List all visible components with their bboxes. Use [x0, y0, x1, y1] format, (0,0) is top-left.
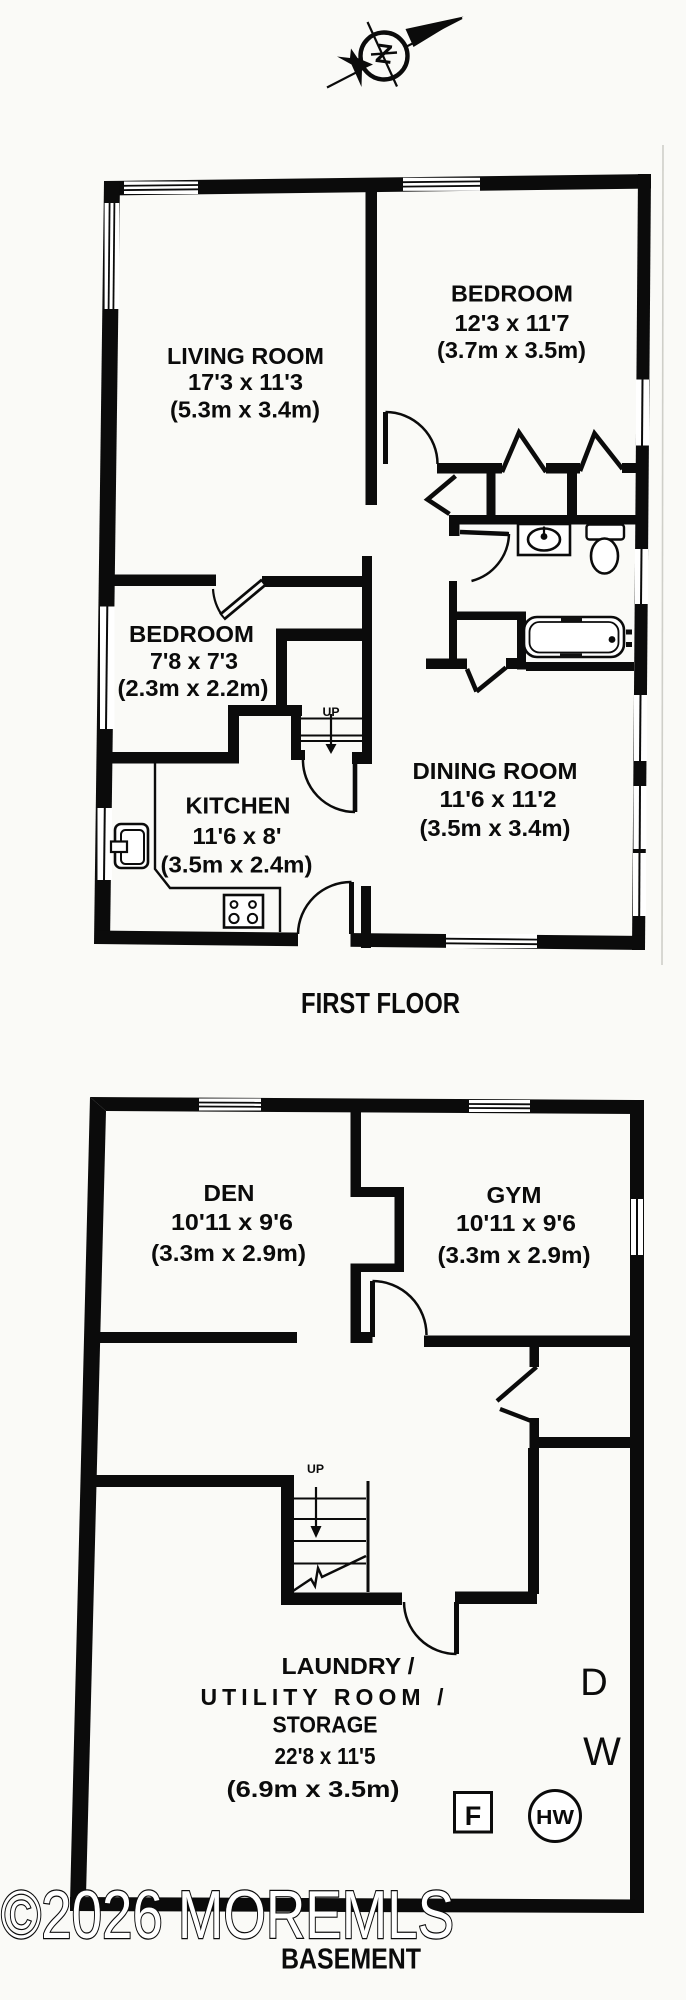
svg-text:(3.5m x 2.4m): (3.5m x 2.4m): [161, 852, 313, 878]
svg-text:HW: HW: [536, 1806, 575, 1829]
svg-text:DEN: DEN: [204, 1180, 255, 1206]
svg-text:11'6 x 8': 11'6 x 8': [193, 823, 282, 849]
svg-text:(2.3m x 2.2m): (2.3m x 2.2m): [118, 675, 269, 701]
svg-text:UP: UP: [307, 1464, 324, 1476]
svg-text:(3.5m x 3.4m): (3.5m x 3.4m): [420, 815, 571, 841]
svg-text:LAUNDRY /: LAUNDRY /: [282, 1653, 416, 1679]
svg-text:D: D: [580, 1662, 607, 1704]
svg-text:(6.9m x 3.5m): (6.9m x 3.5m): [227, 1776, 400, 1802]
svg-text:BASEMENT: BASEMENT: [281, 1944, 421, 1976]
svg-text:W: W: [583, 1730, 621, 1774]
svg-text:BEDROOM: BEDROOM: [451, 281, 573, 307]
svg-text:(5.3m x 3.4m): (5.3m x 3.4m): [170, 397, 320, 423]
svg-text:10'11 x 9'6: 10'11 x 9'6: [456, 1210, 576, 1236]
svg-text:10'11 x 9'6: 10'11 x 9'6: [171, 1209, 293, 1235]
svg-text:GYM: GYM: [487, 1182, 542, 1208]
svg-text:LIVING ROOM: LIVING ROOM: [167, 343, 324, 369]
svg-text:12'3 x 11'7: 12'3 x 11'7: [455, 310, 570, 336]
svg-text:(3.3m x 2.9m): (3.3m x 2.9m): [438, 1242, 591, 1268]
svg-text:STORAGE: STORAGE: [273, 1712, 378, 1738]
svg-text:(3.3m x 2.9m): (3.3m x 2.9m): [151, 1240, 306, 1266]
svg-text:©2026 MOREMLS: ©2026 MOREMLS: [1, 1877, 454, 1953]
svg-text:UP: UP: [323, 707, 340, 719]
svg-text:17'3 x 11'3: 17'3 x 11'3: [188, 369, 303, 395]
svg-text:11'6 x 11'2: 11'6 x 11'2: [440, 786, 557, 812]
svg-text:DINING ROOM: DINING ROOM: [413, 758, 578, 784]
svg-text:KITCHEN: KITCHEN: [186, 793, 291, 819]
svg-text:(3.7m x 3.5m): (3.7m x 3.5m): [437, 337, 586, 363]
svg-text:F: F: [465, 1801, 482, 1831]
svg-text:UTILITY ROOM /: UTILITY ROOM /: [201, 1684, 445, 1710]
svg-text:22'8 x 11'5: 22'8 x 11'5: [275, 1743, 376, 1769]
svg-text:FIRST FLOOR: FIRST FLOOR: [301, 988, 460, 1020]
svg-text:7'8 x 7'3: 7'8 x 7'3: [150, 648, 238, 674]
svg-text:BEDROOM: BEDROOM: [129, 621, 254, 647]
